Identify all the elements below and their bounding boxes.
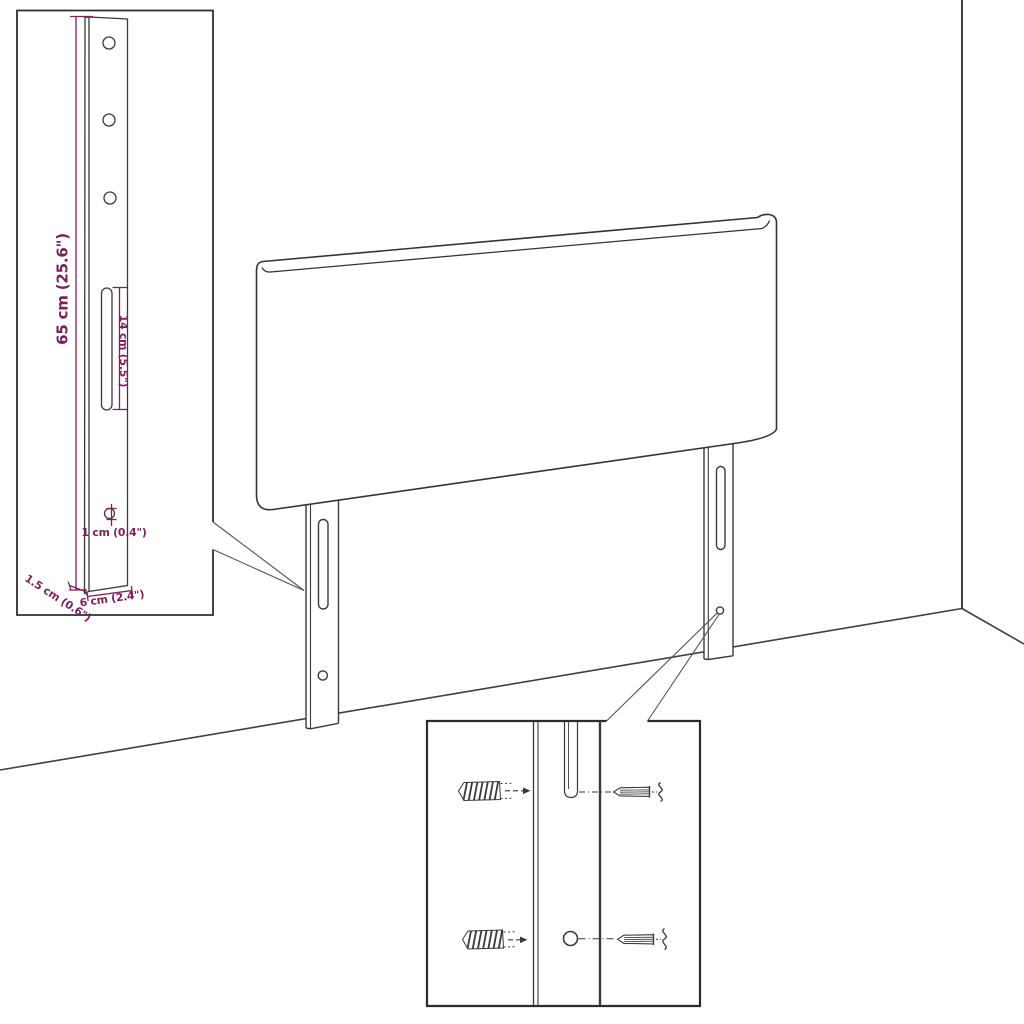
diagram-canvas: 65 cm (25.6") 14 cm (5.5") 1 cm (0.4") 1… bbox=[0, 0, 1024, 1024]
floor-line-right bbox=[962, 609, 1024, 645]
callout-wedge-left bbox=[213, 522, 304, 591]
bracket-detail-inset: 65 cm (25.6") 14 cm (5.5") 1 cm (0.4") 1… bbox=[17, 11, 213, 625]
left-leg-slot bbox=[319, 520, 329, 610]
callout-wedge-right bbox=[607, 613, 720, 721]
mounting-detail-inset bbox=[427, 721, 700, 1006]
mounting-inset-box bbox=[427, 721, 700, 1006]
slot-length-label: 14 cm (5.5") bbox=[117, 315, 130, 387]
product-diagram: 65 cm (25.6") 14 cm (5.5") 1 cm (0.4") 1… bbox=[0, 0, 1024, 1024]
headboard-left-leg bbox=[306, 499, 339, 729]
hole-diameter-label: 1 cm (0.4") bbox=[82, 526, 147, 539]
bracket-drawing bbox=[85, 17, 128, 594]
headboard-panel bbox=[257, 214, 777, 509]
left-leg-hole bbox=[318, 671, 327, 680]
bracket-height-label: 65 cm (25.6") bbox=[54, 233, 72, 345]
headboard-right-leg bbox=[704, 442, 733, 660]
headboard-panel-outline bbox=[257, 214, 777, 509]
right-leg-slot bbox=[717, 467, 726, 550]
